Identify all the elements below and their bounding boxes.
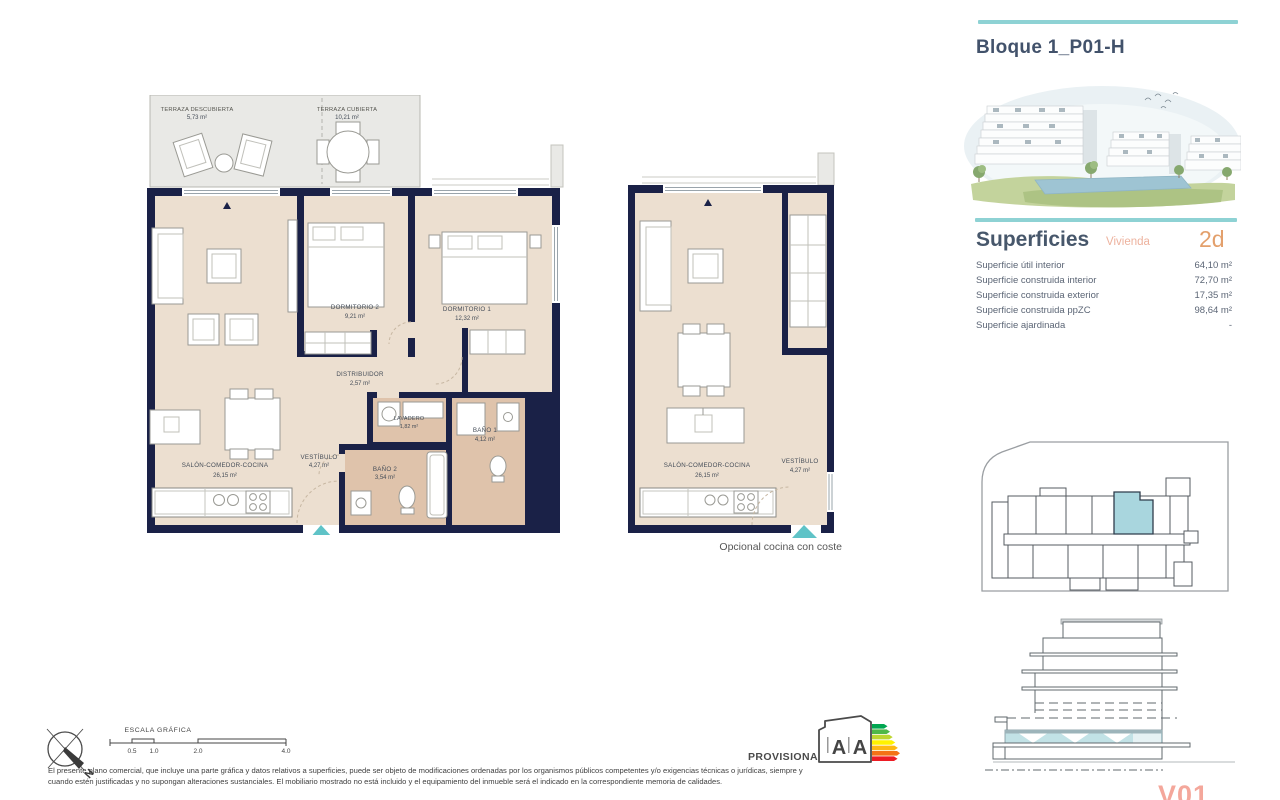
room-label-dormitorio-2: DORMITORIO 2 <box>331 304 380 311</box>
floor-plan-sheet: TERRAZA DESCUBIERTA 5,73 m² TERRAZA CUBI… <box>0 0 1280 800</box>
room-label-terraza-descubierta: TERRAZA DESCUBIERTA <box>161 107 234 113</box>
scale-tick: 1.0 <box>149 748 158 755</box>
surface-value: - <box>1229 318 1232 333</box>
page-title: Bloque 1_P01-H <box>976 37 1125 59</box>
vivienda-label: Vivienda <box>1106 236 1150 248</box>
scale-tick: 4.0 <box>281 748 290 755</box>
room-area-dormitorio-1: 12,32 m² <box>455 316 479 322</box>
surface-label: Superficie construida ppZC <box>976 303 1091 318</box>
room-label-vestibulo: VESTÍBULO <box>301 454 338 461</box>
alt-plan-caption: Opcional cocina con coste <box>690 541 842 553</box>
key-plan <box>978 438 1263 598</box>
surface-label: Superficie construida interior <box>976 273 1096 288</box>
teal-rule-top <box>978 20 1238 24</box>
energy-letter: A <box>832 737 846 759</box>
surface-label: Superficie útil interior <box>976 258 1065 273</box>
scale-tick: 2.0 <box>193 748 202 755</box>
adjacent-structure-lines <box>432 145 563 187</box>
room-label-dormitorio-1: DORMITORIO 1 <box>443 306 492 313</box>
scale-bar-title: ESCALA GRÁFICA <box>125 725 192 734</box>
highlighted-floor <box>1005 730 1162 743</box>
room-label-distribuidor: DISTRIBUIDOR <box>336 371 384 378</box>
room-label-lavadero: LAVADERO <box>394 416 425 422</box>
surface-row: Superficie ajardinada - <box>976 318 1232 333</box>
surface-value: 72,70 m² <box>1195 273 1233 288</box>
surface-value: 64,10 m² <box>1195 258 1233 273</box>
main-floor-plan: TERRAZA DESCUBIERTA 5,73 m² TERRAZA CUBI… <box>145 95 565 535</box>
room-area-bano-2: 3,54 m² <box>375 475 395 481</box>
energy-letter: A <box>853 737 867 759</box>
room-area-lavadero: 1,82 m² <box>400 424 418 430</box>
room-area-dormitorio-2: 9,21 m² <box>345 314 365 320</box>
kitchen-counter <box>640 488 776 517</box>
surface-row: Superficie construida interior 72,70 m² <box>976 273 1232 288</box>
superficies-heading: Superficies <box>976 228 1089 252</box>
room-area-vestibulo: 4,27 m² <box>309 463 329 469</box>
surface-value: 98,64 m² <box>1195 303 1233 318</box>
terrace-side-table <box>215 154 233 172</box>
surface-row: Superficie construida exterior 17,35 m² <box>976 288 1232 303</box>
elevation-drawing <box>985 618 1235 778</box>
room-area-terraza-descubierta: 5,73 m² <box>187 115 207 121</box>
energy-rating-icon: A A <box>815 713 900 769</box>
surface-label: Superficie construida exterior <box>976 288 1099 303</box>
room-area-vestibulo-alt: 4,27 m² <box>790 468 810 474</box>
disclaimer-text: El presente plano comercial, que incluye… <box>48 766 894 787</box>
room-label-vestibulo-alt: VESTÍBULO <box>782 458 819 465</box>
room-area-salon-alt: 26,15 m² <box>695 473 719 479</box>
surface-row: Superficie útil interior 64,10 m² <box>976 258 1232 273</box>
kitchen-counter <box>152 488 292 517</box>
room-label-bano-1: BAÑO 1 <box>473 427 498 434</box>
surface-table: Superficie útil interior 64,10 m² Superf… <box>976 258 1232 333</box>
room-area-salon: 26,15 m² <box>213 473 237 479</box>
terrace-area: TERRAZA DESCUBIERTA 5,73 m² TERRAZA CUBI… <box>150 95 420 187</box>
room-area-distribuidor: 2,57 m² <box>350 381 370 387</box>
provisional-label: PROVISIONAL <box>748 751 825 763</box>
surface-value: 17,35 m² <box>1195 288 1233 303</box>
room-area-bano-1: 4,12 m² <box>475 437 495 443</box>
disclaimer-line-2: cuando estén justificadas y no supongan … <box>48 777 894 788</box>
room-label-bano-2: BAÑO 2 <box>373 466 398 473</box>
building-right <box>1185 136 1241 170</box>
scale-bar: ESCALA GRÁFICA 0.5 1.0 2.0 4.0 <box>108 722 293 756</box>
surface-label: Superficie ajardinada <box>976 318 1065 333</box>
alt-floor-plan: SALÓN-COMEDOR-COCINA 26,15 m² VESTÍBULO … <box>628 95 843 555</box>
room-label-salon: SALÓN-COMEDOR-COCINA <box>182 462 269 469</box>
teal-rule-superficies <box>975 218 1237 222</box>
version-watermark: V01 <box>1158 780 1209 800</box>
room-label-terraza-cubierta: TERRAZA CUBIERTA <box>317 107 377 113</box>
disclaimer-line-1: El presente plano comercial, que incluye… <box>48 766 894 777</box>
building-left <box>975 106 1097 164</box>
surface-row: Superficie construida ppZC 98,64 m² <box>976 303 1232 318</box>
energy-scale-arrows <box>872 724 900 761</box>
room-label-salon-alt: SALÓN-COMEDOR-COCINA <box>664 462 751 469</box>
adjacent-structure-lines <box>642 153 834 185</box>
vivienda-code: 2d <box>1199 226 1225 253</box>
project-render <box>963 84 1241 212</box>
room-area-terraza-cubierta: 10,21 m² <box>335 115 359 121</box>
scale-tick: 0.5 <box>127 748 136 755</box>
